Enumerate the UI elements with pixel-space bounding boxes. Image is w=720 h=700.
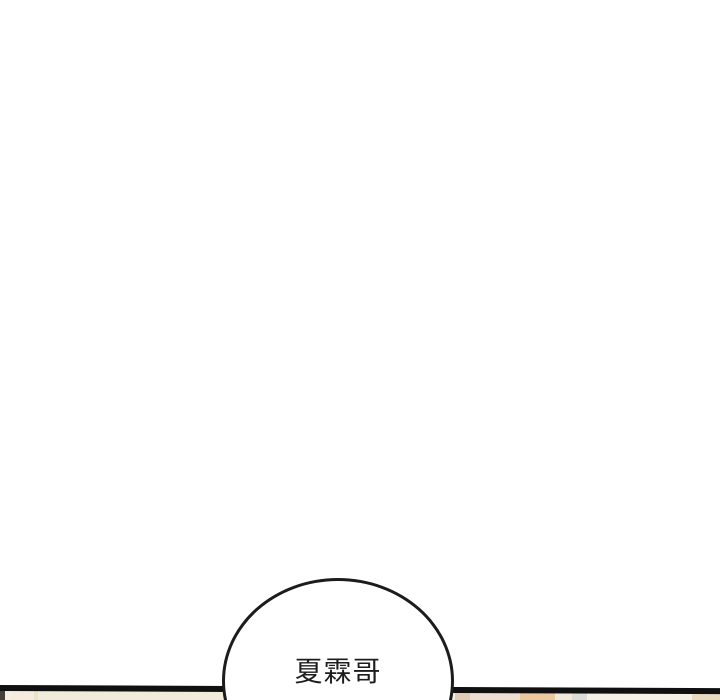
strip-segment — [11, 691, 34, 700]
comic-page: 夏霖哥 — [0, 0, 720, 700]
strip-segment — [38, 691, 228, 700]
speech-bubble-text: 夏霖哥 — [225, 655, 451, 689]
